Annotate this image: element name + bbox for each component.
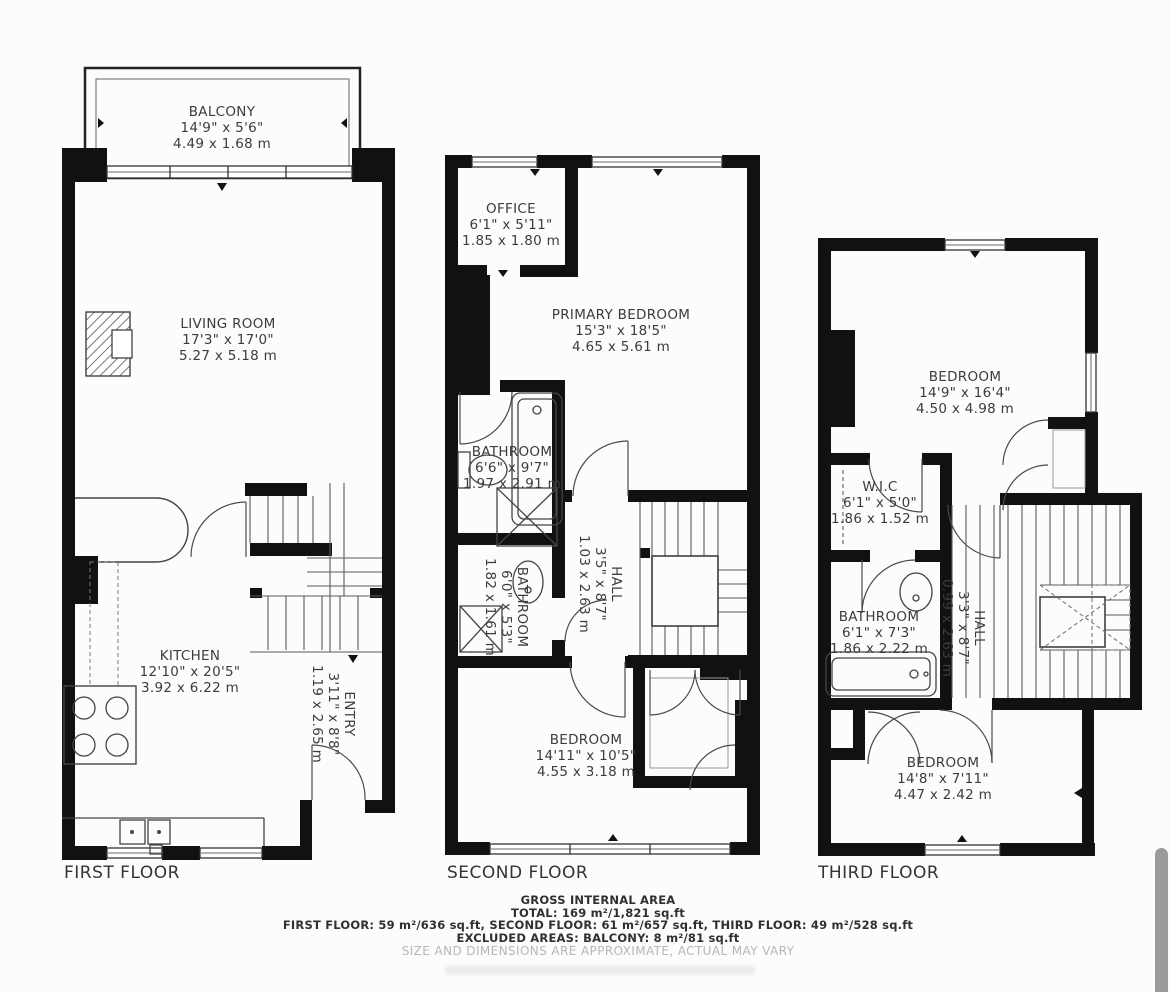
room-label-bathroom-3f: BATHROOM 6'1" x 7'3" 1.86 x 2.22 m bbox=[830, 609, 928, 657]
floorplan-page: BALCONY 14'9" x 5'6" 4.49 x 1.68 m LIVIN… bbox=[0, 0, 1170, 992]
room-label-office: OFFICE 6'1" x 5'11" 1.85 x 1.80 m bbox=[462, 201, 560, 249]
room-label-entry: ENTRY 3'11" x 8'8" 1.19 x 2.65 m bbox=[309, 665, 357, 763]
disclaimer: SIZE AND DIMENSIONS ARE APPROXIMATE, ACT… bbox=[13, 945, 1170, 958]
room-label-bedroom-2f: BEDROOM 14'11" x 10'5" 4.55 x 3.18 m bbox=[536, 732, 637, 780]
room-label-bedroom-3f: BEDROOM 14'9" x 16'4" 4.50 x 4.98 m bbox=[916, 369, 1014, 417]
room-label-balcony: BALCONY 14'9" x 5'6" 4.49 x 1.68 m bbox=[173, 104, 271, 152]
room-label-hall-3f: HALL 3'3" x 8'7" 0.99 x 2.63 m bbox=[939, 579, 987, 677]
first-floor-title: FIRST FLOOR bbox=[64, 863, 180, 883]
watermark-bar bbox=[445, 966, 755, 975]
room-label-bathroom-small: BATHROOM 6'0" x 5'3" 1.82 x 1.61 m bbox=[482, 558, 530, 656]
gross-internal-area-heading: GROSS INTERNAL AREA bbox=[13, 894, 1170, 907]
room-label-living-room: LIVING ROOM 17'3" x 17'0" 5.27 x 5.18 m bbox=[179, 316, 277, 364]
room-label-hall-2f: HALL 3'5" x 8'7" 1.03 x 2.63 m bbox=[576, 535, 624, 633]
second-floor-title: SECOND FLOOR bbox=[447, 863, 588, 883]
room-label-bedroom-3f-small: BEDROOM 14'8" x 7'11" 4.47 x 2.42 m bbox=[894, 755, 992, 803]
excluded-areas: EXCLUDED AREAS: BALCONY: 8 m²/81 sq.ft bbox=[13, 932, 1170, 945]
room-label-primary-bedroom: PRIMARY BEDROOM 15'3" x 18'5" 4.65 x 5.6… bbox=[552, 307, 690, 355]
area-summary: GROSS INTERNAL AREA TOTAL: 169 m²/1,821 … bbox=[13, 894, 1170, 958]
scrollbar-thumb[interactable] bbox=[1155, 848, 1168, 992]
per-floor-areas: FIRST FLOOR: 59 m²/636 sq.ft, SECOND FLO… bbox=[13, 919, 1170, 932]
room-label-wic: W.I.C 6'1" x 5'0" 1.86 x 1.52 m bbox=[831, 479, 929, 527]
room-label-bathroom-main: BATHROOM 6'6" x 9'7" 1.97 x 2.91 m bbox=[463, 444, 561, 492]
third-floor-title: THIRD FLOOR bbox=[818, 863, 939, 883]
room-label-kitchen: KITCHEN 12'10" x 20'5" 3.92 x 6.22 m bbox=[140, 648, 241, 696]
